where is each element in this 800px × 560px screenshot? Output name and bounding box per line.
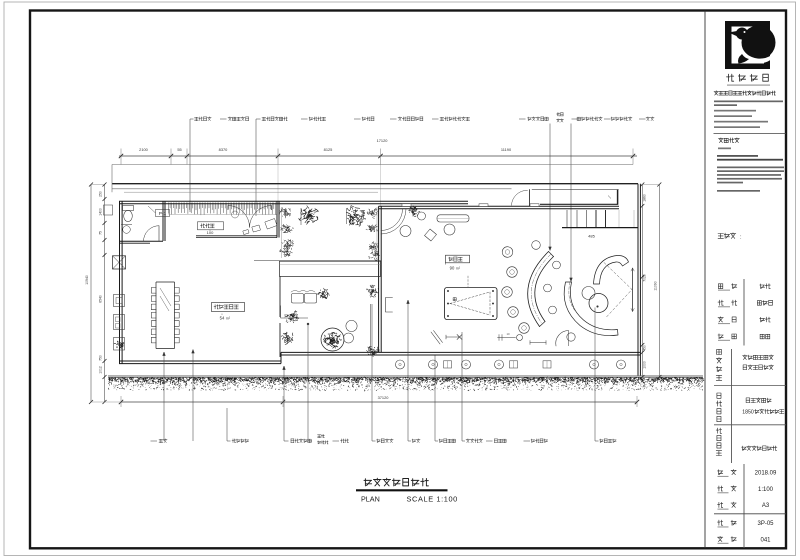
- svg-text:37120: 37120: [378, 395, 390, 400]
- svg-text:1:100: 1:100: [758, 487, 774, 493]
- svg-text:PLAN: PLAN: [361, 495, 380, 504]
- svg-text:55: 55: [177, 147, 181, 152]
- svg-text:1000: 1000: [642, 361, 646, 369]
- svg-text:11190: 11190: [501, 147, 512, 152]
- svg-text:1860: 1860: [642, 194, 646, 202]
- svg-text:3P-05: 3P-05: [757, 521, 774, 527]
- svg-text:8370: 8370: [219, 147, 228, 152]
- svg-text:54: 54: [220, 316, 225, 321]
- svg-text:1400: 1400: [99, 208, 103, 216]
- svg-text:1012: 1012: [99, 366, 103, 374]
- svg-text:2100: 2100: [139, 147, 148, 152]
- svg-text:17120: 17120: [377, 138, 389, 143]
- svg-text:11090: 11090: [653, 281, 657, 290]
- svg-text:8125: 8125: [324, 147, 333, 152]
- svg-text:450: 450: [642, 345, 646, 351]
- svg-text:P-1: P-1: [159, 211, 167, 216]
- svg-text:10: 10: [506, 332, 510, 336]
- svg-text:75: 75: [99, 231, 103, 235]
- svg-text:90: 90: [450, 266, 455, 271]
- svg-text:7020: 7020: [642, 274, 646, 282]
- svg-text:250: 250: [99, 191, 103, 197]
- svg-text:041: 041: [760, 537, 771, 543]
- svg-text:A3: A3: [762, 503, 770, 509]
- svg-text:1850: 1850: [742, 410, 754, 416]
- svg-text:10940: 10940: [85, 275, 89, 285]
- svg-text:485: 485: [588, 233, 595, 238]
- svg-text:SCALE 1:100: SCALE 1:100: [407, 495, 458, 504]
- svg-text:750: 750: [99, 355, 103, 361]
- svg-text:100: 100: [207, 230, 214, 235]
- svg-text:2018.09: 2018.09: [755, 471, 777, 477]
- svg-text:6540: 6540: [99, 295, 103, 303]
